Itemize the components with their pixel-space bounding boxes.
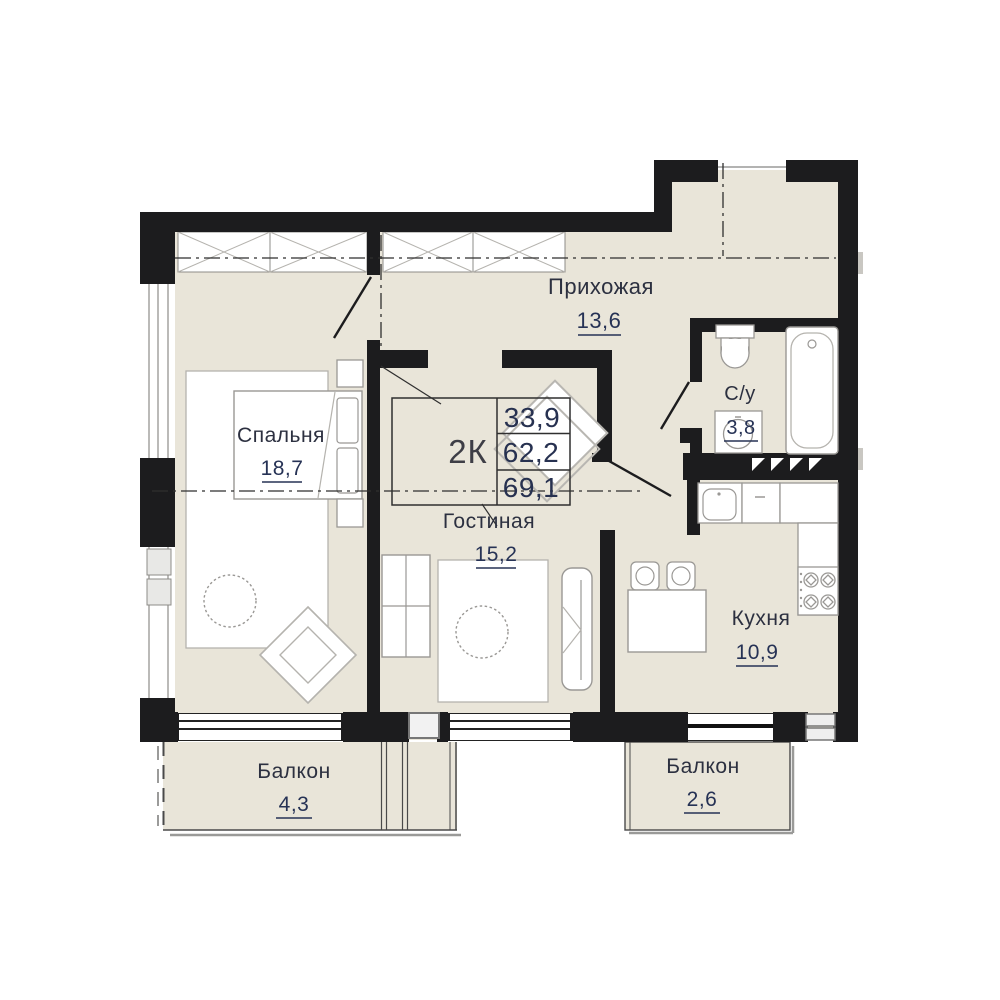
apartment-type-label: 2К: [448, 433, 488, 470]
bathtub: [786, 327, 838, 454]
wall-joint-mark-2: [858, 448, 863, 470]
wall-joint-mark-1: [858, 252, 863, 274]
living-area: 15,2: [475, 543, 518, 566]
sofa: [562, 568, 592, 690]
balcony-door-left: [409, 713, 439, 738]
bathroom-area: 3,8: [726, 417, 755, 439]
balcony-right-name: Балкон: [666, 755, 739, 778]
balcony-left-area: 4,3: [279, 793, 310, 816]
floor-plan: Прихожая 13,6 Спальня 18,7 Гостиная 15,2…: [0, 0, 1000, 1000]
apartment-value-2: 62,2: [503, 437, 560, 468]
nightstand-top: [337, 360, 363, 387]
nightstand-bottom: [337, 499, 363, 527]
living-rug: [438, 560, 548, 702]
hallway-area: 13,6: [577, 308, 622, 333]
balcony-door-right-bottom: [806, 728, 835, 740]
apartment-value-1: 33,9: [504, 402, 561, 433]
stool: [667, 562, 695, 590]
floor-plan-svg: Прихожая 13,6 Спальня 18,7 Гостиная 15,2…: [0, 0, 1000, 1000]
hallway-name: Прихожая: [548, 274, 654, 299]
stool: [631, 562, 659, 590]
toilet-tank: [716, 325, 754, 338]
bedroom-name: Спальня: [237, 424, 325, 447]
balcony-left: [158, 742, 461, 835]
bathroom-name: С/у: [724, 383, 756, 405]
pillow: [337, 448, 358, 493]
balcony-right-area: 2,6: [687, 788, 718, 811]
pillow: [337, 398, 358, 443]
balcony-left-name: Балкон: [257, 760, 330, 783]
counter-cabinet: [742, 483, 780, 523]
counter-corner: [780, 483, 838, 523]
bedroom-area: 18,7: [261, 457, 304, 480]
living-name: Гостиная: [443, 510, 535, 533]
kitchen-name: Кухня: [732, 607, 791, 630]
kitchen-table: [628, 590, 706, 652]
balcony-door-right-top: [806, 714, 835, 726]
apartment-value-3: 69,1: [503, 472, 560, 503]
kitchen-area: 10,9: [736, 641, 779, 664]
